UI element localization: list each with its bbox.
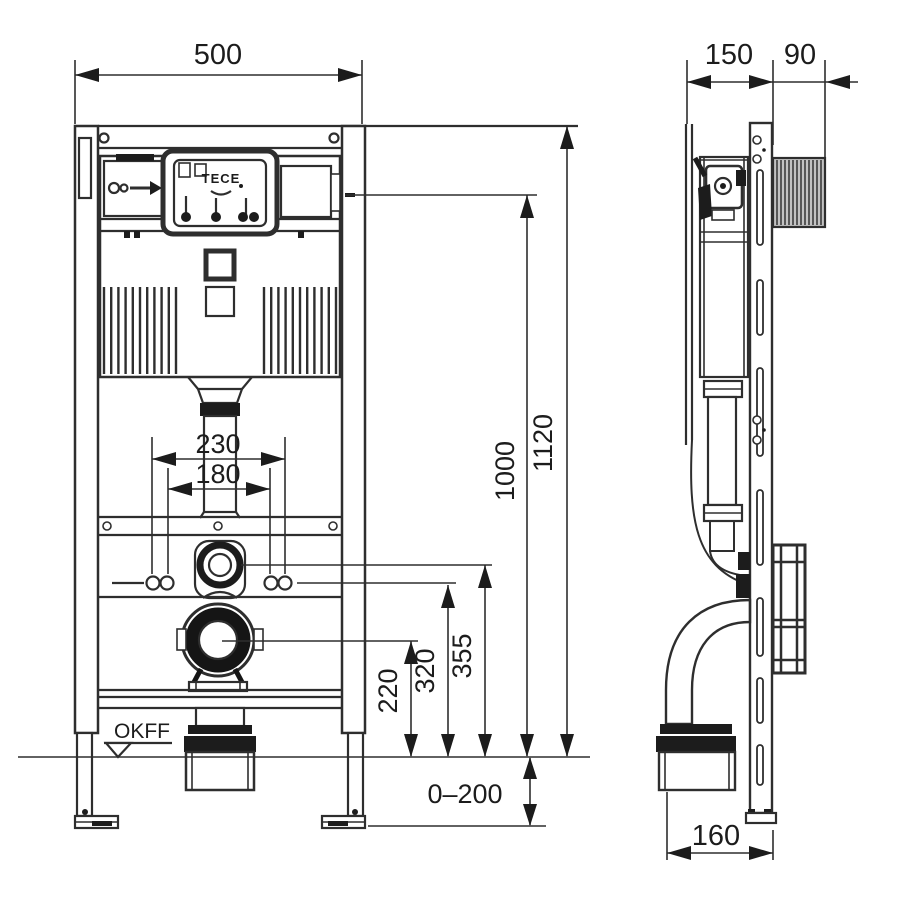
cistern-side <box>695 157 750 377</box>
frame-front-edge <box>686 124 692 445</box>
dim-floor-adjust-label: 0–200 <box>427 779 502 809</box>
actuation-opening-lower <box>206 287 234 316</box>
dim-panel-height-label: 1000 <box>490 441 520 501</box>
dim-frame-depth-label: 150 <box>705 39 753 71</box>
rail-foot <box>746 813 776 823</box>
fill-valve <box>104 154 168 216</box>
drain-elbow-side <box>656 600 750 790</box>
drain-socket-side <box>659 752 735 790</box>
fixing-bolts <box>98 565 492 597</box>
wc-bracket-box <box>773 545 805 673</box>
flush-pipe-side <box>691 381 750 598</box>
actuation-opening-upper <box>206 251 234 279</box>
dim-total-height-1120: 1120 <box>528 126 574 757</box>
floor-outlet <box>184 708 256 790</box>
dim-width-label: 500 <box>194 39 242 71</box>
technical-drawing: 500 <box>0 0 900 900</box>
front-view: 500 <box>18 39 590 828</box>
dim-outlet-offset-160: 160 <box>667 792 773 860</box>
flush-elbow <box>195 541 245 598</box>
tece-logo: TECE <box>202 171 241 186</box>
dim-outlet-offset-label: 160 <box>692 820 740 852</box>
dim-flush-bend-height-label: 355 <box>447 633 477 678</box>
top-screw-right <box>330 134 339 143</box>
inspection-box: TECE <box>163 151 277 234</box>
dim-width-500: 500 <box>75 39 362 124</box>
drain-connection <box>177 604 263 691</box>
ribbed-protection-box <box>773 158 825 227</box>
frame-leg-right <box>348 733 363 816</box>
frame-leg-left <box>77 733 92 816</box>
dim-fix-outer-label: 230 <box>195 429 240 459</box>
wall-anchor-plate <box>79 138 91 198</box>
side-view: 150 90 <box>656 39 858 860</box>
floor-level-marker: OKFF <box>104 720 172 757</box>
dim-outlet-height-label: 220 <box>373 668 403 713</box>
dim-total-height-label: 1120 <box>528 414 558 472</box>
dim-fixing-height-label: 320 <box>410 648 440 693</box>
rail-slots <box>757 170 763 785</box>
dim-floor-adjust: 0–200 <box>368 757 546 826</box>
side-compartment <box>281 166 331 217</box>
bolt-rail <box>98 517 342 535</box>
frame-rail-left <box>75 126 98 733</box>
top-screw-left <box>100 134 109 143</box>
mounting-rail <box>746 123 776 823</box>
frame-rail-right <box>342 126 365 733</box>
cistern: TECE <box>100 151 340 377</box>
dim-box-depth-label: 90 <box>784 39 816 71</box>
dim-fix-inner-label: 180 <box>195 459 240 489</box>
okff-label: OKFF <box>114 720 170 743</box>
level-triangle-icon <box>106 743 131 757</box>
dim-flush-bend-height-355: 355 <box>447 565 492 757</box>
bottom-crossbar <box>98 690 342 708</box>
technical-drawing-canvas: 500 <box>0 0 900 900</box>
